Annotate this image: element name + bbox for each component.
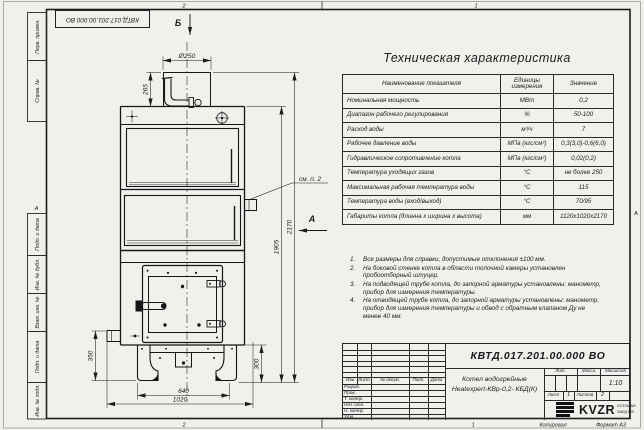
spec-row: Номинальная мощностьМВт0,2 [343, 94, 614, 109]
spec-row: Рабочее давление водыМПа (кгс/см²)0,3(3,… [343, 137, 614, 152]
drawing-sheet: { "sheet": { "stamp_top": "КВТД.017.201.… [0, 0, 644, 430]
zone-side-left: А [34, 206, 39, 212]
drawing-designation: КВТД.017.201.00.000 ВО [445, 344, 631, 368]
view-b-label: Б [175, 18, 182, 28]
margin-label: Перв. примен. [35, 19, 41, 53]
middle-panel [125, 196, 241, 246]
sheet-number: 1 [563, 391, 574, 400]
product-name-line2: Heatexpert-КВр-0,2- КБД(К) [452, 387, 537, 394]
kvzr-logo-icon [556, 402, 576, 417]
upper-panel [127, 129, 239, 187]
footer-format: Формат А3 [596, 423, 627, 429]
spec-row: Габариты котла (длинна х ширина х высота… [343, 210, 614, 225]
lit-label: Лит. [544, 368, 577, 375]
margin-label: Справ. № [35, 79, 41, 103]
product-name-line1: Котел водогрейные [462, 377, 527, 384]
dim-label-total-width: 1020 [173, 397, 188, 404]
spec-title: Техническая характеристика [352, 51, 602, 65]
spec-row: Гидравлическое сопротивление котлаМПа (к… [343, 152, 614, 167]
top-stamp-text: КВТД.017.201.00.000 ВО [66, 16, 139, 23]
view-a-label: А [308, 214, 316, 224]
callout-note2-label: см. п. 2 [299, 176, 322, 183]
note-item: 1.Все размеры для справки, допустимые от… [350, 256, 604, 264]
spec-row: Расход водым³/ч7 [343, 123, 614, 138]
spec-row: Максимальная рабочая температура воды°С1… [343, 181, 614, 196]
spec-table: Наименование показателя Единицы измерени… [342, 74, 614, 225]
product-name: Котел водогрейные Heatexpert-КВр-0,2- КБ… [445, 368, 544, 429]
chimney [162, 73, 211, 108]
dim-label-body-height: 1905 [274, 239, 281, 254]
rev-col-izm: Изм [343, 377, 357, 384]
dim-label-flue-height: 265 [143, 84, 150, 96]
zone-side-right: А [633, 211, 638, 217]
margin-label: Инв. № подл. [35, 384, 41, 416]
scale-label: Масштаб [600, 368, 631, 375]
dim-label-base-width: 640 [178, 388, 189, 395]
rev-col-date: Дата [428, 377, 445, 384]
margin-label: Взам. инв. № [35, 296, 41, 328]
spec-row: Температура уходящих газов°Сне более 250 [343, 166, 614, 181]
spec-row: Диапазон рабочего регулирования%50-100 [343, 108, 614, 123]
dim-label-total-height: 2170 [287, 219, 294, 235]
rev-col-docnum: № докум. [371, 377, 409, 384]
margin-label: Подп. и дата [35, 341, 41, 374]
flue-elbow [171, 79, 189, 100]
door-handle [136, 301, 167, 312]
spec-header-row: Наименование показателя Единицы измерени… [343, 75, 614, 94]
title-block: Изм Лист № докум. Подп. Дата Разраб. Про… [342, 343, 630, 419]
note-item: 3.На подводящей трубе котла, до запорной… [350, 281, 604, 296]
zone-top-right: 1 [474, 4, 477, 10]
mass-label: Масса [577, 368, 600, 375]
top-fitting-marks [126, 111, 229, 126]
kvzr-logo-text: KVZR [577, 400, 617, 420]
sampling-stub-right [245, 200, 257, 211]
flue-elbow-outer [165, 79, 190, 106]
spec-header-name: Наименование показателя [343, 75, 501, 94]
note-item: 4.На отводящей трубе котла, до запорной … [350, 297, 604, 320]
extension-lines [92, 57, 300, 409]
scale-value: 1:10 [600, 375, 631, 391]
notes-list: 1.Все размеры для справки, допустимые от… [350, 256, 604, 321]
rev-col-sign: Подп. [409, 377, 428, 384]
margin-label: Подп. и дата [35, 218, 41, 251]
furnace-door [136, 266, 226, 343]
rev-col-list: Лист [357, 377, 371, 384]
dim-label-flue-diameter: Ø250 [178, 53, 196, 60]
dim-label-right-height: 300 [254, 358, 261, 369]
spec-row: Температура воды (вход/выход)°С70/95 [343, 195, 614, 210]
sampling-stub-left [107, 331, 140, 342]
left-margin-labels: Перв. примен. Справ. № Подп. и дата Инв.… [35, 19, 41, 416]
note-item: 2.На боковой стенке котла в области топо… [350, 265, 604, 280]
kvzr-logo-sub2: ЗАВОД РЭП [617, 410, 634, 414]
dim-label-left-height: 350 [88, 350, 95, 361]
spec-header-value: Значение [554, 75, 614, 94]
top-stamp: КВТД.017.201.00.000 ВО [55, 10, 150, 28]
drawing-labels: Б А Ø250 265 1905 2170 350 300 640 1020 … [88, 18, 322, 404]
spec-header-units: Единицы измерения [501, 75, 554, 94]
sheets-label: Листов [574, 391, 596, 400]
kvzr-logo-sub1: КОТЕЛЬНЫЙ [617, 404, 636, 408]
callout-leader [251, 183, 328, 199]
margin-label: Инв. № дубл. [35, 259, 41, 291]
sheet-label: Лист [544, 391, 563, 400]
flue-flange-hub [195, 99, 201, 105]
sign-row-approved: Утв. [344, 414, 371, 420]
boiler-view [92, 14, 329, 408]
sheets-number: 2 [596, 391, 609, 400]
